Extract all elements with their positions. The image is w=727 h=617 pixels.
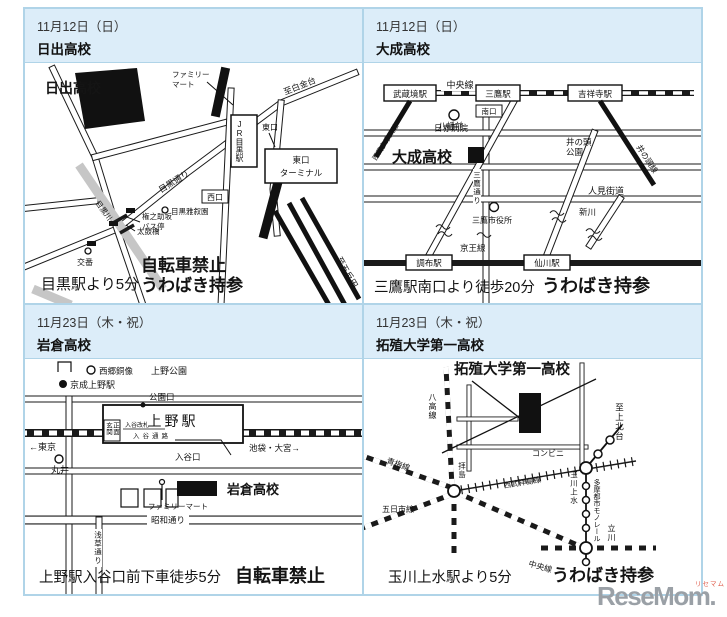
access-caption: 三鷹駅南口より徒歩20分 [374, 279, 535, 296]
note-bring-slippers: うわばき持参 [542, 275, 651, 296]
hitomi-kaido-label: 人見街道 [588, 185, 624, 196]
city-hall-label: 三鷹市役所 [472, 215, 512, 225]
south-exit-label: 南口 [482, 106, 497, 116]
mitaka-station-label: 三鷹駅 [485, 89, 511, 99]
gajoen-label: 目黒雅叙園 [171, 206, 209, 216]
haijima-label: 拝島 [458, 462, 466, 479]
event-date: 11月12日（日） [37, 16, 350, 35]
taiko-bridge-label: 太鼓橋 [137, 226, 160, 236]
signpost-mark [160, 480, 165, 485]
keio-line-label: 京王線 [460, 243, 486, 253]
to-kamikitadai-label: 至上北台 [615, 403, 624, 441]
inokashira-park-label-1: 井の頭 [566, 137, 592, 147]
koban-label: 交番 [77, 257, 93, 267]
iwakura-school-building [177, 481, 217, 496]
iwakura-map-title: 岩倉高校 [226, 482, 280, 497]
shinkawa-label: 新川 [579, 207, 596, 217]
haijima-station-mark [448, 485, 460, 497]
iriya-exit-label: 入谷口 [175, 452, 201, 462]
tama-monorail-label: 多摩都市モノレール [593, 479, 600, 542]
bus-stop-label-1: 権之助坂 [142, 211, 172, 221]
access-caption: 目黒駅より5分 [41, 276, 139, 293]
main-entrance-label-left: 玄関 [104, 422, 111, 435]
school-name: 拓殖大学第一高校 [376, 334, 689, 354]
park-exit-mark [141, 403, 146, 408]
panel-hinode-header: 11月12日（日） 日出高校 [25, 9, 362, 63]
hinode-access-map: 東口 東口 ターミナル 西口 ファミリー マート 権之助坂 [25, 63, 362, 303]
panel-iwakura: 11月23日（木・祝） 岩倉高校 西郷銅像 京成上野駅 [25, 305, 362, 594]
taisei-map-title: 大成高校 [392, 148, 453, 166]
taisei-access-map: 中央線 武蔵境駅 三鷹駅 吉祥寺駅 南口 西武多摩川線 日赤病院 井の頭線 井の… [364, 63, 701, 303]
hinode-map-title: 日出高校 [45, 80, 102, 96]
asakusa-dori-label: 浅草通り [94, 529, 102, 567]
marui-label: 丸井 [51, 464, 69, 475]
access-caption: 玉川上水駅より5分 [388, 569, 512, 586]
musashisakai-station-label: 武蔵境駅 [393, 89, 428, 99]
conbini-label: コンビニ [532, 449, 564, 458]
inokashira-park-label-2: 公園 [566, 147, 583, 157]
iriya-gate-label: 入谷改札 [125, 421, 149, 429]
marui-mark [55, 455, 63, 463]
familymart-label: ファミリーマート [148, 502, 208, 511]
chofu-station-label: 調布駅 [416, 258, 442, 268]
keisei-ueno-label: 京成上野駅 [70, 379, 115, 390]
taisei-map-canvas: 中央線 武蔵境駅 三鷹駅 吉祥寺駅 南口 西武多摩川線 日赤病院 井の頭線 井の… [364, 63, 701, 303]
hachiman-mae-label: 八幡前 [438, 121, 464, 131]
chuo-line-label: 中央線 [527, 558, 553, 574]
school-name: 日出高校 [37, 38, 350, 58]
saigo-statue-mark [87, 366, 95, 374]
takushoku-school-building [519, 393, 541, 433]
familymart-label-1: ファミリー [172, 70, 210, 79]
ueno-station-label: 上野駅 [148, 413, 199, 429]
west-exit-label: 西口 [207, 193, 223, 202]
park-gate-mark [58, 362, 71, 372]
east-exit-label: 東口 [262, 122, 278, 132]
panel-takushoku-header: 11月23日（木・祝） 拓殖大学第一高校 [364, 305, 701, 359]
ueno-park-label: 上野公園 [151, 366, 187, 376]
panel-hinode: 11月12日（日） 日出高校 [25, 9, 362, 303]
school-name: 大成高校 [376, 38, 689, 58]
iriya-passage-label: 入谷通路 [133, 431, 171, 440]
itsukaichi-line-label: 五日市線 [382, 504, 414, 514]
panel-taisei: 11月12日（日） 大成高校 [364, 9, 701, 303]
iwakura-access-map: 西郷銅像 京成上野駅 上野公園 池袋・大宮→ 上野駅 [25, 359, 362, 594]
gajoen-mark [162, 207, 168, 213]
tamagawa-josui-station-mark [580, 462, 592, 474]
note-bring-slippers: うわばき持参 [141, 275, 243, 295]
east-terminal-label-1: 東口 [292, 155, 309, 165]
ikebukuro-omiya-label: 池袋・大宮→ [249, 443, 300, 453]
takushoku-map-title: 拓殖大学第一高校 [454, 360, 570, 378]
meguro-dori-label: 目黒通り [157, 168, 191, 195]
showa-dori-label: 昭和通り [151, 515, 185, 525]
tachikawa-station-mark [580, 542, 592, 554]
takushoku-map-canvas: 拓殖大学第一高校 コンビニ 青梅線 五日市線 [364, 359, 701, 594]
note-no-bicycle: 自転車禁止 [235, 565, 325, 586]
seibu-haijima-track [454, 461, 636, 491]
resemom-logo: リセマム ReseMom. [597, 581, 727, 615]
panel-takushoku: 11月23日（木・祝） 拓殖大学第一高校 拓殖大学第 [364, 305, 701, 594]
note-no-bicycle: 自転車禁止 [141, 255, 226, 275]
schedule-map-grid: 11月12日（日） 日出高校 [23, 7, 703, 596]
roads [364, 101, 701, 303]
taisei-school-building [468, 147, 484, 163]
event-date: 11月12日（日） [376, 16, 689, 35]
event-date: 11月23日（木・祝） [376, 312, 689, 331]
city-hall-mark [490, 203, 499, 212]
school-name: 岩倉高校 [37, 334, 350, 354]
hinode-school-building [75, 68, 145, 129]
panel-taisei-header: 11月12日（日） 大成高校 [364, 9, 701, 63]
access-caption: 上野駅入谷口前下車徒歩5分 [39, 569, 221, 586]
takushoku-access-map: 拓殖大学第一高校 コンビニ 青梅線 五日市線 [364, 359, 701, 594]
chuo-line-track [460, 494, 656, 548]
hinode-map-canvas: 東口 東口 ターミナル 西口 ファミリー マート 権之助坂 [25, 63, 362, 303]
meguro-station-label: JR目黒駅 [235, 120, 243, 162]
hachiko-line-track [446, 367, 452, 487]
east-terminal-label-2: ターミナル [280, 168, 323, 178]
keisei-ueno-mark [59, 380, 67, 388]
seibu-haijima-label: 西武拝島線 [503, 474, 542, 490]
page: 11月12日（日） 日出高校 [0, 0, 727, 617]
iwakura-map-canvas: 西郷銅像 京成上野駅 上野公園 池袋・大宮→ 上野駅 [25, 359, 362, 594]
resemom-logo-ruby: リセマム [695, 578, 725, 588]
hospital-mark [449, 110, 459, 120]
saigo-statue-label: 西郷銅像 [99, 366, 134, 376]
to-gotanda-label: 至五反田 [334, 255, 360, 289]
chuo-line-label: 中央線 [446, 79, 473, 90]
tachikawa-label: 立川 [607, 524, 615, 542]
familymart-label-2: マート [172, 80, 195, 89]
mitaka-dori-label: 三鷹通り [473, 169, 481, 207]
to-tokyo-label: ←東京 [29, 441, 56, 452]
hachiko-line-label: 八高線 [428, 393, 436, 420]
event-date: 11月23日（木・祝） [37, 312, 350, 331]
park-exit-label: 公園口 [149, 392, 175, 402]
koban-mark [85, 248, 91, 254]
inokashira-line [600, 101, 654, 185]
sengawa-station-label: 仙川駅 [534, 258, 560, 268]
tamagawa-josui-label: 玉川上水 [570, 471, 578, 505]
river-break-marks [436, 211, 602, 241]
panel-iwakura-header: 11月23日（木・祝） 岩倉高校 [25, 305, 362, 359]
kichijoji-station-label: 吉祥寺駅 [578, 89, 613, 99]
